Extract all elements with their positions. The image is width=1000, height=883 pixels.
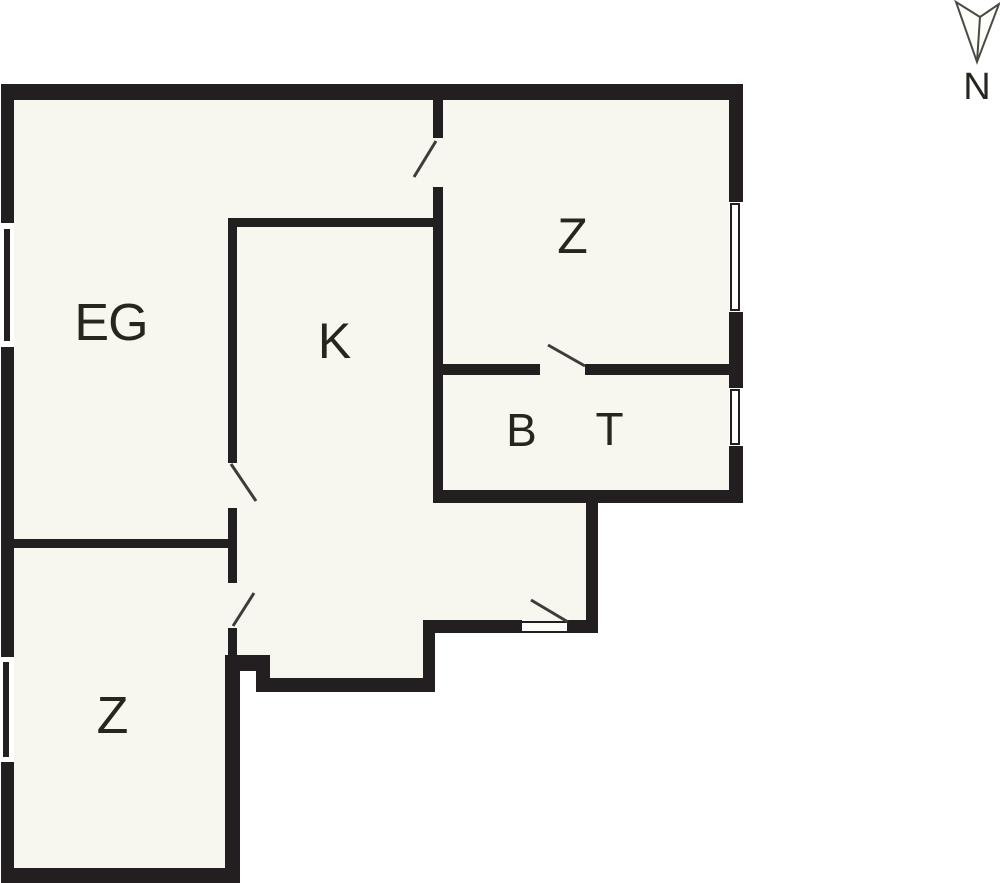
room-label-k: K <box>318 316 350 366</box>
wall-z2-right <box>225 655 240 883</box>
wall-bottom <box>1 868 240 883</box>
wall-main-vertical-lower <box>433 187 443 490</box>
wall-top <box>1 84 743 100</box>
wall-k-left-3 <box>228 628 237 655</box>
entry-door-leaf <box>520 621 569 633</box>
room-label-b: B <box>506 407 536 453</box>
wall-left-lower <box>1 762 14 883</box>
wall-left-upper <box>1 84 14 223</box>
window-z1-glass <box>730 203 740 311</box>
window-eg-glass <box>4 229 10 341</box>
room-label-eg: EG <box>74 297 147 349</box>
wall-k-left-2 <box>228 508 237 583</box>
room-label-z-bottom: Z <box>97 690 128 742</box>
wall-zbt-left <box>443 364 540 375</box>
wall-zbt-right <box>585 364 729 375</box>
wall-corridor-east <box>586 503 598 633</box>
outside-area <box>240 692 435 883</box>
wall-bt-bottom <box>433 490 743 503</box>
window-z2-glass <box>3 662 9 757</box>
wall-hall-bottom <box>256 678 435 692</box>
window-bt-glass <box>730 389 740 445</box>
outside-area <box>435 633 598 883</box>
wall-right-middle <box>729 312 743 388</box>
wall-right-lower <box>729 446 743 503</box>
room-label-z-top: Z <box>557 211 587 261</box>
outside-area <box>598 503 1000 883</box>
outside-area <box>240 671 256 883</box>
wall-entry-left <box>423 620 522 633</box>
wall-main-vertical-upper <box>433 100 443 138</box>
wall-eg-z-divider <box>14 539 228 548</box>
wall-left-middle <box>1 347 14 657</box>
north-label: N <box>963 68 990 106</box>
wall-right-upper <box>729 84 743 202</box>
room-label-t: T <box>595 406 622 452</box>
wall-k-left-1 <box>228 218 237 463</box>
floor-plan: EG K Z B T Z N <box>0 0 1000 883</box>
wall-k-top <box>228 218 443 227</box>
